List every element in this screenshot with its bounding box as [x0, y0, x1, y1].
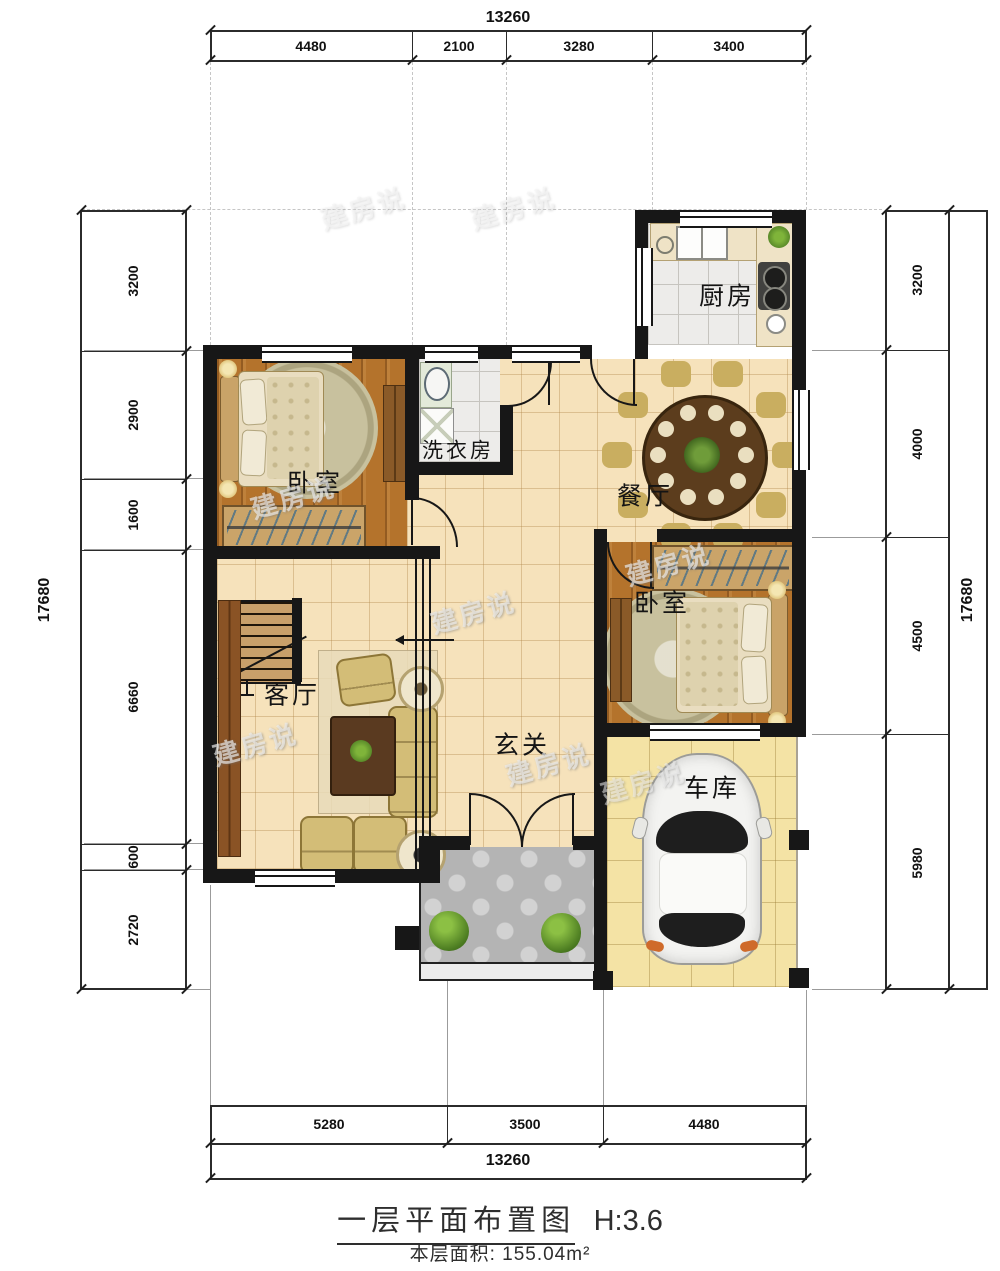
dimension-line — [80, 210, 82, 990]
dimension-line — [80, 479, 187, 480]
stair-wall — [292, 598, 302, 682]
dimension-line — [185, 210, 187, 990]
room-label-garage: 车库 — [684, 777, 740, 802]
bedside-lamp — [768, 581, 786, 599]
dim-value: 5280 — [313, 1117, 344, 1131]
stairs-direction-arrow — [246, 680, 248, 694]
wall — [405, 345, 419, 500]
tv-cabinet — [610, 598, 632, 702]
room-label-laundry: 洗衣房 — [422, 441, 494, 462]
grid-line — [652, 62, 653, 210]
bed-blanket — [267, 377, 319, 479]
watermark: 建房说 — [318, 185, 409, 234]
dimension-line — [986, 210, 988, 990]
wall — [792, 210, 806, 737]
dimension-line — [80, 351, 187, 352]
dim-value: 5980 — [910, 847, 924, 878]
door-leaf — [411, 497, 413, 545]
car-taillight — [739, 939, 759, 953]
pillow — [741, 655, 768, 704]
dimension-line — [885, 734, 950, 735]
armchair — [300, 816, 354, 874]
dimension-line — [80, 550, 187, 551]
extension-line — [812, 734, 885, 735]
wall-stub — [395, 926, 419, 950]
dim-value: 4000 — [910, 428, 924, 459]
wall — [573, 836, 594, 850]
wall — [405, 462, 513, 475]
stove-burner — [763, 287, 787, 311]
dim-value: 2720 — [126, 914, 140, 945]
dim-value: 3200 — [126, 265, 140, 296]
dim-value: 2900 — [126, 399, 140, 430]
column — [789, 968, 809, 988]
column — [593, 971, 613, 990]
dim-value: 3200 — [910, 264, 924, 295]
window — [255, 869, 335, 887]
floor-plan: 厨房 卧室 洗衣房 餐厅 卧室 客厅 玄关 车库 建房说 建房说 建房说 建房说… — [0, 0, 1000, 1271]
bed-headboard — [220, 376, 240, 482]
porch-step — [419, 962, 596, 981]
dimension-line — [885, 988, 988, 990]
dim-value: 3400 — [713, 39, 744, 53]
bedside-lamp — [219, 480, 237, 498]
pillow — [240, 429, 267, 476]
dim-value: 2100 — [443, 39, 474, 53]
dimension-line — [885, 537, 950, 538]
dresser — [383, 385, 407, 482]
dim-total-right: 17680 — [960, 578, 976, 623]
dimension-line — [210, 1105, 806, 1107]
dim-total-top: 13260 — [486, 10, 531, 26]
laundry-sink — [424, 367, 450, 401]
window — [792, 390, 810, 470]
dimension-line — [885, 210, 988, 212]
dimension-line — [80, 988, 187, 990]
door-leaf — [572, 793, 574, 845]
hanger-rail — [227, 510, 361, 545]
bed-blanket — [680, 602, 738, 706]
dimension-line — [885, 210, 887, 990]
floor-area-text: 本层面积: 155.04m² — [410, 1244, 591, 1267]
dimension-line — [210, 30, 806, 32]
dim-value: 4480 — [295, 39, 326, 53]
stairs-arrow-base — [240, 694, 254, 696]
pillow — [740, 603, 768, 653]
window — [680, 210, 772, 228]
watermark: 建房说 — [468, 185, 559, 234]
column — [789, 830, 809, 850]
bedside-lamp — [219, 360, 237, 378]
room-label-dining: 餐厅 — [617, 485, 673, 510]
pillow — [239, 378, 267, 426]
dimension-line — [948, 210, 950, 990]
extension-line — [210, 885, 211, 1105]
plan-height-note: H:3.6 — [594, 1204, 663, 1239]
door-leaf — [469, 793, 471, 845]
room-label-bedroom2: 卧室 — [634, 592, 690, 617]
extension-line — [812, 537, 885, 538]
dimension-line — [80, 210, 187, 212]
dim-value: 1600 — [126, 499, 140, 530]
bush — [541, 913, 581, 953]
bush — [429, 911, 469, 951]
caption-area-row: 本层面积: 155.04m² — [0, 1244, 1000, 1267]
caption-row: 一层平面布置图 H:3.6 — [0, 1204, 1000, 1245]
kitchen-small-sink — [766, 314, 786, 334]
extension-line — [447, 977, 448, 1105]
wall — [657, 529, 806, 542]
grid-line — [412, 62, 413, 345]
extension-line — [603, 990, 604, 1105]
dim-value: 6660 — [126, 681, 140, 712]
window — [635, 248, 653, 326]
plan-title: 一层平面布置图 — [337, 1204, 575, 1245]
window — [512, 345, 580, 363]
extension-line — [806, 990, 807, 1105]
dimension-line — [210, 1143, 806, 1145]
car-roof — [659, 853, 747, 915]
window — [425, 345, 478, 363]
partition-marker — [396, 639, 454, 641]
coffee-table-plant — [350, 740, 372, 762]
door-leaf — [548, 362, 550, 405]
grid-line — [806, 62, 807, 210]
extension-line — [812, 989, 885, 990]
dimension-line — [80, 870, 187, 871]
partition-marker-arrow — [390, 635, 404, 645]
dim-total-left: 17680 — [37, 578, 53, 623]
dim-total-bottom: 13260 — [486, 1153, 531, 1169]
dimension-line — [447, 1105, 448, 1145]
wall — [203, 345, 217, 883]
dim-value: 4480 — [688, 1117, 719, 1131]
kitchen-sink — [676, 226, 728, 260]
dim-value: 3280 — [563, 39, 594, 53]
wall — [203, 546, 440, 559]
dimension-line — [210, 60, 806, 62]
garage-edge-line — [796, 737, 798, 987]
kitchen-dish-icons — [656, 236, 674, 254]
dim-value: 3500 — [509, 1117, 540, 1131]
kitchen-plant — [768, 226, 790, 248]
grid-line — [210, 62, 211, 345]
door-leaf — [633, 359, 635, 404]
tv-cabinet — [218, 600, 241, 857]
dimension-line — [603, 1105, 604, 1145]
window — [650, 723, 760, 741]
room-label-kitchen: 厨房 — [699, 285, 755, 310]
dim-value: 4500 — [910, 620, 924, 651]
extension-line — [812, 350, 885, 351]
dimension-line — [885, 350, 950, 351]
partition-lines — [415, 559, 431, 869]
room-label-living: 客厅 — [264, 684, 320, 709]
armchair — [335, 652, 397, 707]
dimension-line — [210, 1178, 806, 1180]
window — [262, 345, 352, 363]
wall — [594, 529, 607, 975]
dim-value: 600 — [126, 845, 140, 868]
dining-centerpiece-plant — [684, 437, 720, 473]
